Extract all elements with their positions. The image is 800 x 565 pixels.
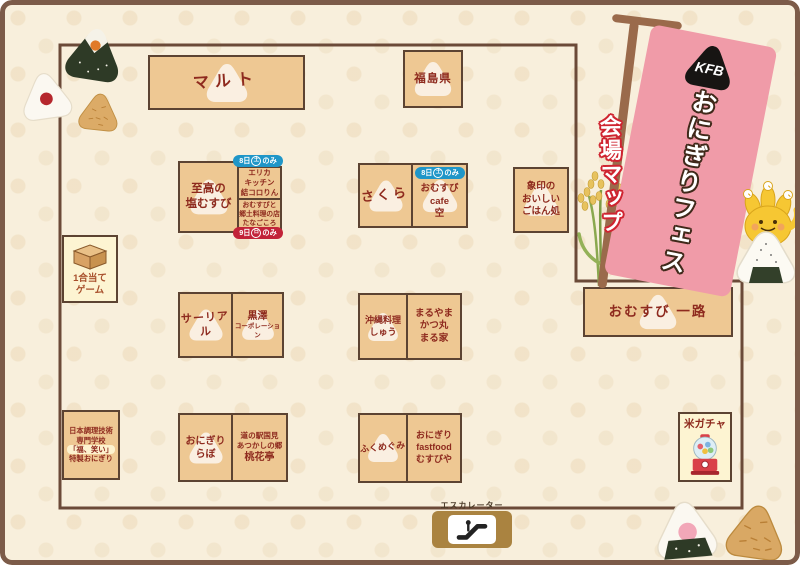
booth-label: 結コロりん xyxy=(241,188,279,198)
badge-sat-only: 8日土のみ xyxy=(233,155,283,167)
booth-label: あつかしの郷 xyxy=(237,441,283,451)
booth-surreal: サーリアル xyxy=(178,292,233,358)
booth-label: 黒澤 xyxy=(233,310,282,323)
booth-maruyama-katsumaru-maruya: まるやま かつ丸 まる家 xyxy=(406,293,462,360)
booth-shiko-no-shiomusubi: 至高の 塩むすび xyxy=(178,161,239,233)
booth-label: 1合当て xyxy=(73,273,107,285)
booth-label: エリカ xyxy=(241,168,279,178)
booth-label: おにぎり xyxy=(186,435,226,448)
booth-label: キッチン xyxy=(241,178,279,188)
booth-label: 象印の xyxy=(522,181,560,193)
gacha-machine-icon xyxy=(688,434,722,476)
escalator-sign xyxy=(432,511,512,548)
booth-label: 特製おにぎり xyxy=(67,454,115,463)
booth-label: 沖縄料理 xyxy=(365,315,401,327)
booth-label: コーポレーション xyxy=(233,323,282,340)
banner-subtitle: 会場マップ xyxy=(597,114,621,234)
booth-label: おにぎり xyxy=(416,430,452,442)
badge-text: 9日 xyxy=(239,228,250,238)
event-banner: KFB おにぎりフェス 会場マップ xyxy=(608,8,800,298)
badge-text: のみ xyxy=(262,156,276,166)
booth-label: かつ丸 xyxy=(415,320,453,332)
badge-text: 8日 xyxy=(421,168,432,178)
venue-map-page: マルト 福島県 至高の 塩むすび エリカ キッチン 結コロりん おむすびと 郷土… xyxy=(0,0,800,565)
booth-fukumegumi: ふくめぐみ xyxy=(358,413,408,483)
booth-label: しゅう xyxy=(365,327,401,339)
booth-zojirushi-gohan: 象印の おいしい ごはん処 xyxy=(513,167,569,233)
booth-label: サーリアル xyxy=(179,309,232,341)
booth-label: むすびや xyxy=(416,454,452,466)
booth-label: おむすび 一路 xyxy=(609,303,708,321)
badge-day-circle: 土 xyxy=(251,156,261,166)
kfb-logo: KFB xyxy=(681,39,739,94)
booth-michinoeki-kunimi-tokaei: 道の駅国見 あつかしの郷 桃花亭 xyxy=(231,413,288,482)
booth-nihon-chori-gijutsu-senmongakko: 日本調理技術 専門学校 「福、笑い」 特製おにぎり xyxy=(62,410,120,480)
booth-label: 日本調理技術 xyxy=(67,426,115,435)
booth-okinawa-ryori-shu: 沖縄料理 しゅう xyxy=(358,293,408,360)
masu-rice-box-icon xyxy=(72,241,108,271)
badge-sun-only: 9日日のみ xyxy=(233,227,283,239)
booth-label: ゲーム xyxy=(73,285,107,297)
booth-label: 道の駅国見 xyxy=(237,431,283,441)
booth-label: 空 xyxy=(420,208,458,220)
booth-label: cafe xyxy=(420,196,458,208)
escalator-icon xyxy=(448,515,496,544)
booth-fukushima-ken: 福島県 xyxy=(403,50,463,108)
badge-text: のみ xyxy=(262,228,276,238)
escalator-label: エスカレーター xyxy=(420,500,524,511)
booth-label: おいしい xyxy=(522,194,560,206)
badge-text: のみ xyxy=(444,168,458,178)
booth-label: おむすびと xyxy=(239,202,280,211)
booth-label: 塩むすび xyxy=(186,197,232,212)
booth-kome-gacha: 米ガチャ xyxy=(678,412,732,482)
booth-label: ごはん処 xyxy=(522,206,560,218)
booth-maruto: マルト xyxy=(148,55,305,110)
banner-title: おにぎりフェス xyxy=(656,87,717,277)
booth-label: らぼ xyxy=(186,448,226,461)
booth-label: 米ガチャ xyxy=(684,418,726,432)
booth-onigiri-fastfood-musubiya: おにぎり fastfood むすびや xyxy=(406,413,462,483)
badge-day-circle: 土 xyxy=(433,168,443,178)
booth-erika-kitchen: エリカ キッチン 結コロりん xyxy=(237,166,282,200)
booth-label: fastfood xyxy=(416,442,452,454)
booth-label: おむすび xyxy=(420,183,458,195)
badge-text: 8日 xyxy=(239,156,250,166)
booth-sakura: さくら xyxy=(358,163,413,228)
badge-day-circle: 日 xyxy=(251,228,261,238)
booth-label: まる家 xyxy=(415,333,453,345)
booth-label: 福島県 xyxy=(414,72,452,87)
badge-sat-only: 8日土のみ xyxy=(415,167,465,179)
booth-label: 至高の xyxy=(186,182,232,197)
booth-onigiri-lab: おにぎり らぼ xyxy=(178,413,233,482)
booth-kurosawa-corporation: 黒澤 コーポレーション xyxy=(231,292,284,358)
booth-label: 専門学校 xyxy=(67,436,115,445)
booth-ichigo-ate-game: 1合当て ゲーム xyxy=(62,235,118,303)
booth-label: 「福、笑い」 xyxy=(67,445,115,454)
booth-label: まるやま xyxy=(415,308,453,320)
booth-label: 郷土料理の店 xyxy=(239,211,280,220)
booth-label: 桃花亭 xyxy=(237,451,283,464)
